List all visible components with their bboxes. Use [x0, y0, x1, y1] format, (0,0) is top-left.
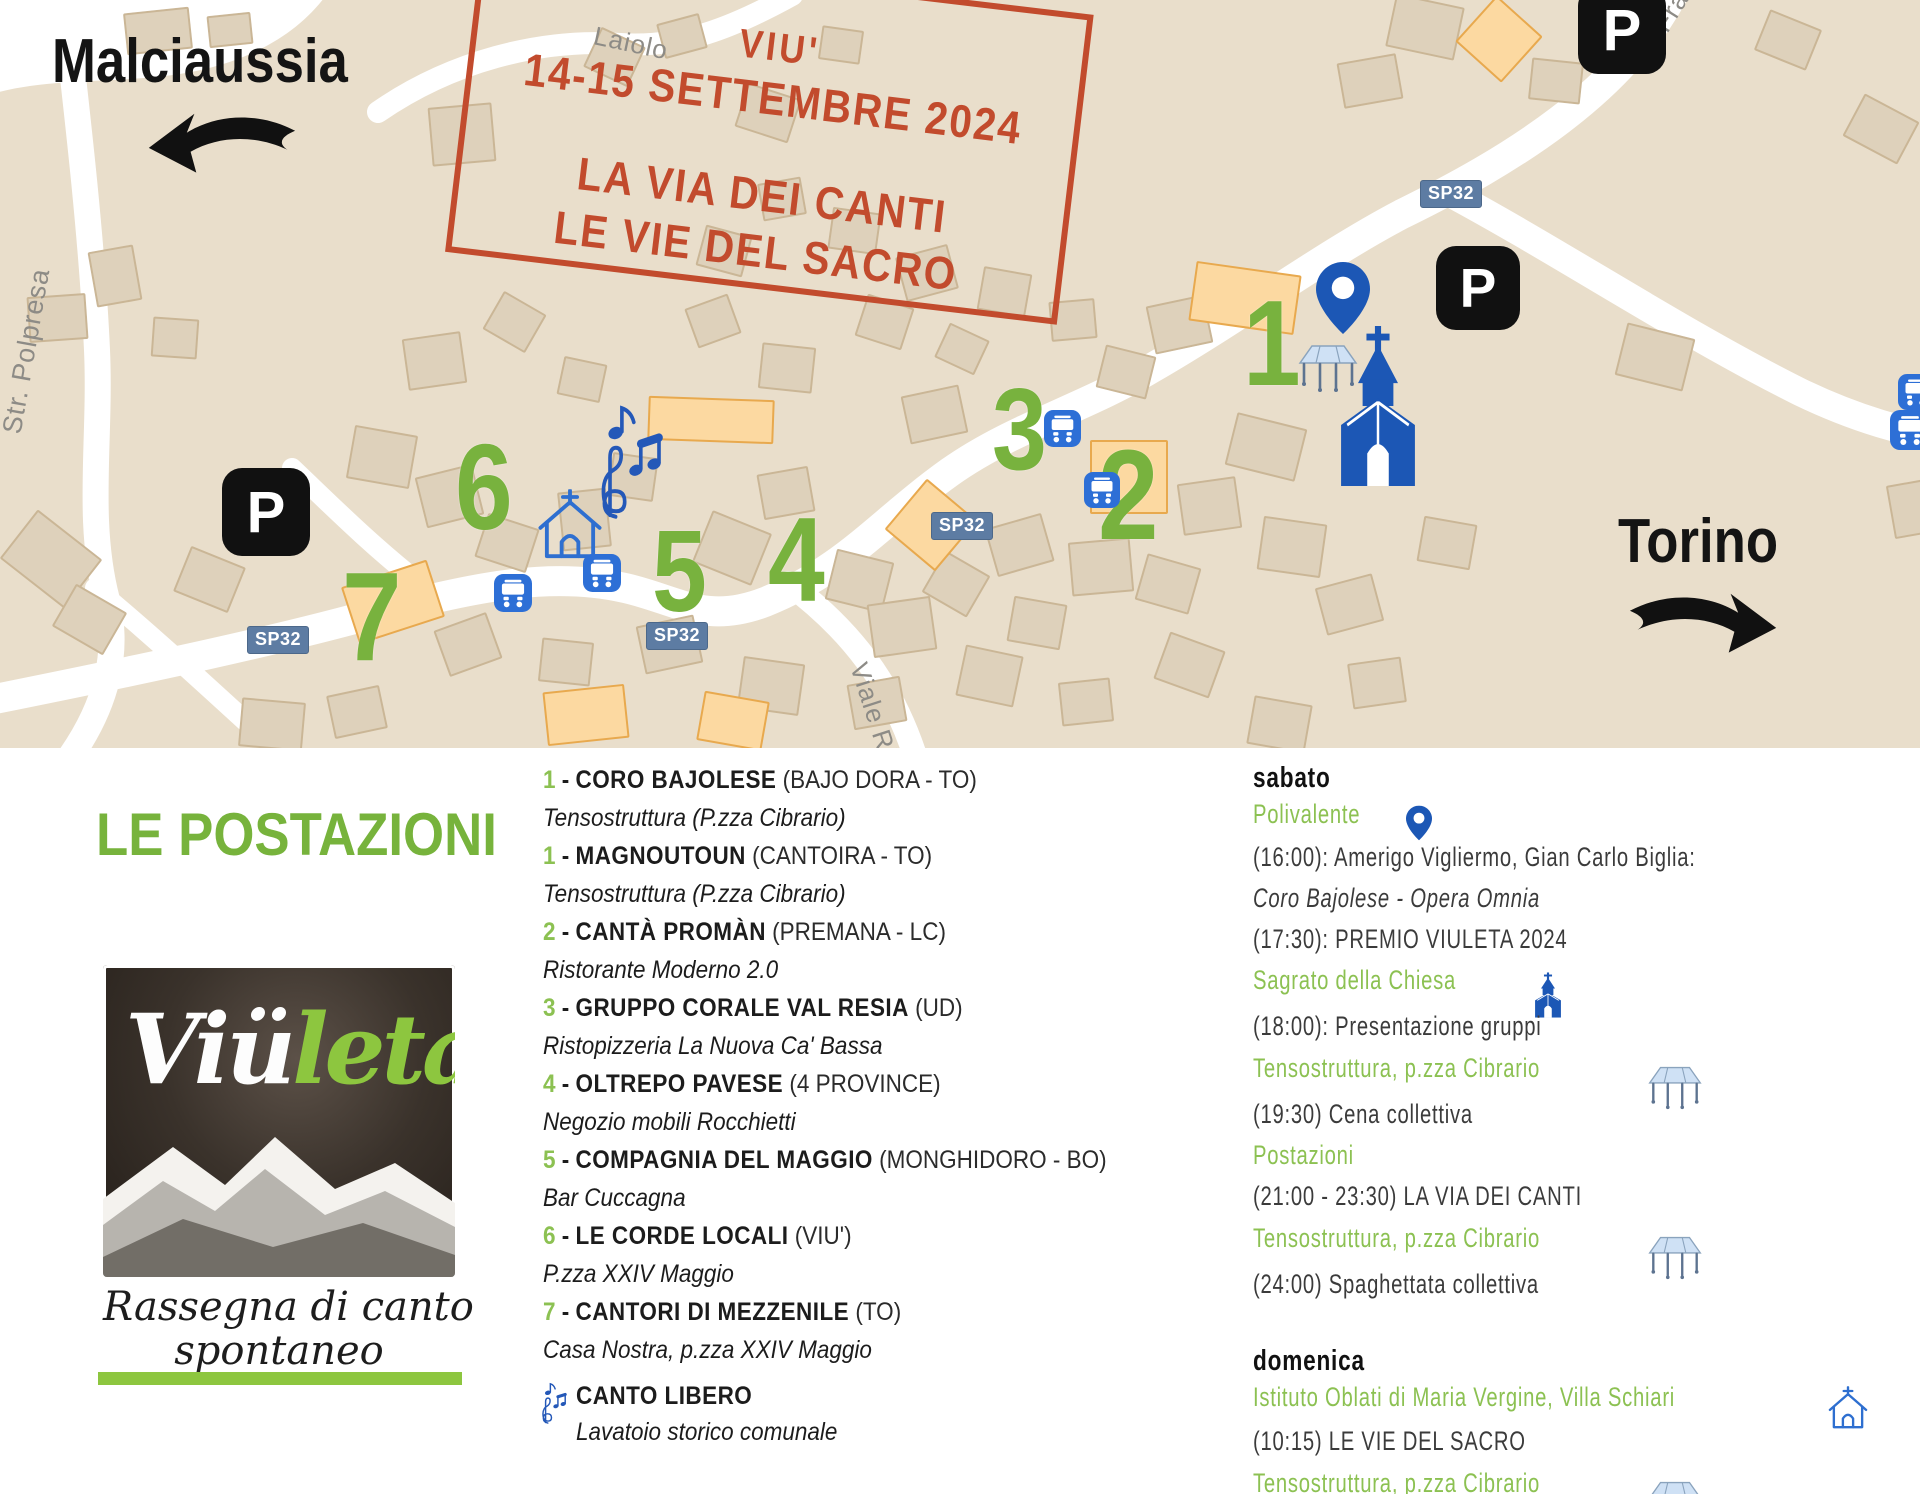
schedule-location: Istituto Oblati di Maria Vergine, Villa …: [1253, 1379, 1893, 1423]
legend-entry: 2 - CANTÀ PROMÀN (PREMANA - LC) Ristoran…: [543, 913, 1243, 989]
legend-entry-name: GRUPPO CORALE VAL RESIA: [576, 994, 909, 1022]
building: [151, 316, 200, 359]
building: [758, 342, 817, 393]
destination-torino: Torino: [1618, 506, 1778, 577]
legend-entry-origin: (MONGHIDORO - BO): [879, 1146, 1106, 1174]
legend-entry-venue: Bar Cuccagna: [543, 1179, 1173, 1217]
building: [1336, 53, 1403, 109]
legend-entry-line: 4 - OLTREPO PAVESE (4 PROVINCE): [543, 1065, 1173, 1103]
legend-entry-venue: Tensostruttura (P.zza Cibrario): [543, 875, 1173, 913]
map-marker-4: 4: [768, 508, 825, 614]
building: [867, 596, 938, 658]
building: [482, 291, 546, 354]
legend-entry: 4 - OLTREPO PAVESE (4 PROVINCE) Negozio …: [543, 1065, 1243, 1141]
canto-libero-venue: Lavatoio storico comunale: [576, 1414, 837, 1450]
building: [1754, 9, 1822, 71]
event-poster: VIU' 14-15 SETTEMBRE 2024 LA VIA DEI CAN…: [0, 0, 1920, 1494]
destination-malciaussia: Malciaussia: [52, 26, 348, 97]
bus-stop-icon: [1890, 410, 1920, 450]
viuleta-logo: Viületa: [103, 965, 455, 1277]
building: [1842, 93, 1919, 164]
map-marker-6: 6: [455, 434, 513, 541]
building: [1058, 677, 1114, 726]
building: [1416, 516, 1477, 571]
mountains-graphic: [103, 1107, 455, 1277]
logo-underline: [98, 1372, 462, 1385]
legend-entry-line: 3 - GRUPPO CORALE VAL RESIA (UD): [543, 989, 1173, 1027]
legend-entry: 1 - MAGNOUTOUN (CANTOIRA - TO) Tensostru…: [543, 837, 1243, 913]
saturday-items: Polivalente(16:00): Amerigo Vigliermo, G…: [1253, 796, 1893, 1307]
logo-subtitle-line1: Rassegna di canto: [103, 1284, 455, 1330]
legend-entry-venue: P.zza XXIV Maggio: [543, 1255, 1173, 1293]
pin-icon: [1406, 803, 1432, 843]
logo-brand-green: leta: [292, 993, 455, 1106]
legend-entry-number: 5: [543, 1146, 556, 1174]
building: [984, 513, 1054, 577]
legend-entry: 6 - LE CORDE LOCALI (VIU') P.zza XXIV Ma…: [543, 1217, 1243, 1293]
legend-entry-line: 6 - LE CORDE LOCALI (VIU'): [543, 1217, 1173, 1255]
bus-stop-icon: [1898, 374, 1920, 410]
map-section: VIU' 14-15 SETTEMBRE 2024 LA VIA DEI CAN…: [0, 0, 1920, 748]
legend-entry-venue: Tensostruttura (P.zza Cibrario): [543, 799, 1173, 837]
legend-entry-line: 2 - CANTÀ PROMÀN (PREMANA - LC): [543, 913, 1173, 951]
legend-entry-origin: (PREMANA - LC): [772, 918, 946, 946]
building: [433, 612, 502, 677]
building: [1528, 57, 1584, 104]
sunday-title: domenica: [1253, 1343, 1752, 1379]
saturday-block: sabato Polivalente(16:00): Amerigo Vigli…: [1253, 760, 1893, 1307]
building: [1177, 476, 1243, 536]
building: [538, 637, 594, 686]
building: [1347, 656, 1407, 709]
legend-entry-number: 1: [543, 766, 556, 794]
legend-entry-number: 6: [543, 1222, 556, 1250]
legend-entry-venue: Casa Nostra, p.zza XXIV Maggio: [543, 1331, 1173, 1369]
building: [901, 384, 969, 444]
schedule-event: (24:00) Spaghettata collettiva: [1253, 1266, 1893, 1307]
building: [1246, 695, 1313, 748]
highlighted-building: [647, 396, 774, 444]
legend-entry: 1 - CORO BAJOLESE (BAJO DORA - TO) Tenso…: [543, 761, 1243, 837]
bus-stop-icon: [1044, 410, 1081, 447]
legend-entry-line: 7 - CANTORI DI MEZZENILE (TO): [543, 1293, 1173, 1331]
sunday-block: domenica Istituto Oblati di Maria Vergin…: [1253, 1343, 1893, 1494]
parking-icon: P: [1578, 0, 1666, 74]
schedule-section: sabato Polivalente(16:00): Amerigo Vigli…: [1253, 760, 1893, 1494]
building: [1257, 516, 1328, 578]
legend-entry: 7 - CANTORI DI MEZZENILE (TO) Casa Nostr…: [543, 1293, 1243, 1369]
map-marker-7: 7: [342, 562, 402, 673]
building: [1225, 412, 1308, 482]
legend-entry-number: 2: [543, 918, 556, 946]
bus-stop-icon: [583, 554, 621, 592]
highlighted-building: [542, 684, 629, 746]
building: [238, 697, 306, 748]
parking-icon: P: [222, 468, 310, 556]
road-badge-sp32: SP32: [1420, 180, 1482, 208]
canto-libero-name: CANTO LIBERO: [576, 1378, 837, 1414]
highlighted-building: [696, 691, 770, 748]
legend-entry-venue: Negozio mobili Rocchietti: [543, 1103, 1173, 1141]
building: [1315, 573, 1385, 636]
logo-brand: Viületa: [125, 993, 455, 1106]
schedule-event: (18:00): Presentazione gruppi: [1253, 1008, 1893, 1049]
legend-entry-name: LE CORDE LOCALI: [576, 1222, 789, 1250]
schedule-location: Tensostruttura, p.zza Cibrario: [1253, 1049, 1893, 1096]
schedule-location: Polivalente: [1253, 796, 1893, 839]
legend-entry: 3 - GRUPPO CORALE VAL RESIA (UD) Ristopi…: [543, 989, 1243, 1065]
schedule-event: (17:30): PREMIO VIULETA 2024: [1253, 921, 1893, 962]
schedule-location: Tensostruttura, p.zza Cibrario: [1253, 1219, 1893, 1266]
legend-entry-name: OLTREPO PAVESE: [576, 1070, 784, 1098]
building: [402, 331, 468, 391]
logo-subtitle-line2: spontaneo: [103, 1328, 455, 1374]
building: [1615, 322, 1696, 391]
schedule-location: Postazioni: [1253, 1137, 1893, 1178]
building: [684, 293, 742, 348]
road-badge-sp32: SP32: [931, 512, 993, 540]
bus-stop-icon: [1084, 472, 1120, 508]
building: [346, 425, 418, 489]
legend-entry-number: 1: [543, 842, 556, 870]
schedule-event: (19:30) Cena collettiva: [1253, 1096, 1893, 1137]
legend-entry-venue: Ristorante Moderno 2.0: [543, 951, 1173, 989]
legend-entry-origin: (TO): [855, 1298, 901, 1326]
schedule-event: (10:15) LE VIE DEL SACRO: [1253, 1423, 1893, 1464]
church-icon: [1338, 326, 1418, 486]
legend-entry-line: 1 - MAGNOUTOUN (CANTOIRA - TO): [543, 837, 1173, 875]
map-marker-3: 3: [992, 378, 1047, 480]
legend-entry: 5 - COMPAGNIA DEL MAGGIO (MONGHIDORO - B…: [543, 1141, 1243, 1217]
highlighted-building: [1455, 0, 1543, 83]
building: [934, 322, 990, 375]
music-notes-icon: [540, 1380, 568, 1428]
legend-entry-origin: (UD): [915, 994, 962, 1022]
arrow-right-icon: [1628, 586, 1780, 666]
legend-entry-line: 1 - CORO BAJOLESE (BAJO DORA - TO): [543, 761, 1173, 799]
legend-entry-number: 4: [543, 1070, 556, 1098]
schedule-event: (16:00): Amerigo Vigliermo, Gian Carlo B…: [1253, 839, 1893, 880]
legend-entry-name: MAGNOUTOUN: [576, 842, 746, 870]
bus-stop-icon: [494, 574, 532, 612]
legend-entry-origin: (4 PROVINCE): [789, 1070, 940, 1098]
legend-entry-origin: (BAJO DORA - TO): [783, 766, 977, 794]
saturday-title: sabato: [1253, 760, 1752, 796]
logo-brand-white: Viü: [125, 993, 292, 1106]
road-badge-sp32: SP32: [247, 626, 309, 654]
building: [955, 644, 1024, 707]
legend-entry-name: CANTORI DI MEZZENILE: [576, 1298, 850, 1326]
canto-libero-entry: CANTO LIBERO Lavatoio storico comunale: [540, 1378, 866, 1450]
legend-entry-origin: (CANTOIRA - TO): [752, 842, 932, 870]
building: [173, 546, 246, 614]
legend-entry-venue: Ristopizzeria La Nuova Ca' Bassa: [543, 1027, 1173, 1065]
building: [1006, 596, 1067, 651]
schedule-location: Sagrato della Chiesa: [1253, 962, 1893, 1008]
map-marker-1: 1: [1243, 290, 1301, 397]
building: [87, 244, 142, 307]
map-marker-5: 5: [652, 520, 707, 622]
legend-entry-number: 3: [543, 994, 556, 1022]
schedule-event: (21:00 - 23:30) LA VIA DEI CANTI: [1253, 1178, 1893, 1219]
building: [1095, 344, 1156, 399]
sunday-items: Istituto Oblati di Maria Vergine, Villa …: [1253, 1379, 1893, 1494]
arrow-left-icon: [145, 106, 297, 186]
schedule-location: Tensostruttura, p.zza Cibrario: [1253, 1464, 1893, 1494]
building: [1153, 631, 1226, 698]
legend-entry-line: 5 - COMPAGNIA DEL MAGGIO (MONGHIDORO - B…: [543, 1141, 1173, 1179]
legend-entry-name: CANTÀ PROMÀN: [576, 918, 766, 946]
legend-entry-origin: (VIU'): [795, 1222, 852, 1250]
legend-entry-name: COMPAGNIA DEL MAGGIO: [576, 1146, 873, 1174]
building: [1886, 475, 1920, 539]
legend-title: LE POSTAZIONI: [96, 800, 497, 869]
building: [326, 685, 388, 739]
legend-entry-number: 7: [543, 1298, 556, 1326]
parking-icon: P: [1436, 246, 1520, 330]
legend-entries: 1 - CORO BAJOLESE (BAJO DORA - TO) Tenso…: [543, 761, 1243, 1369]
building: [556, 356, 607, 403]
legend-entry-name: CORO BAJOLESE: [576, 766, 777, 794]
tent-icon: [1646, 1478, 1704, 1494]
schedule-event: Coro Bajolese - Opera Omnia: [1253, 880, 1893, 921]
building: [1385, 0, 1465, 61]
